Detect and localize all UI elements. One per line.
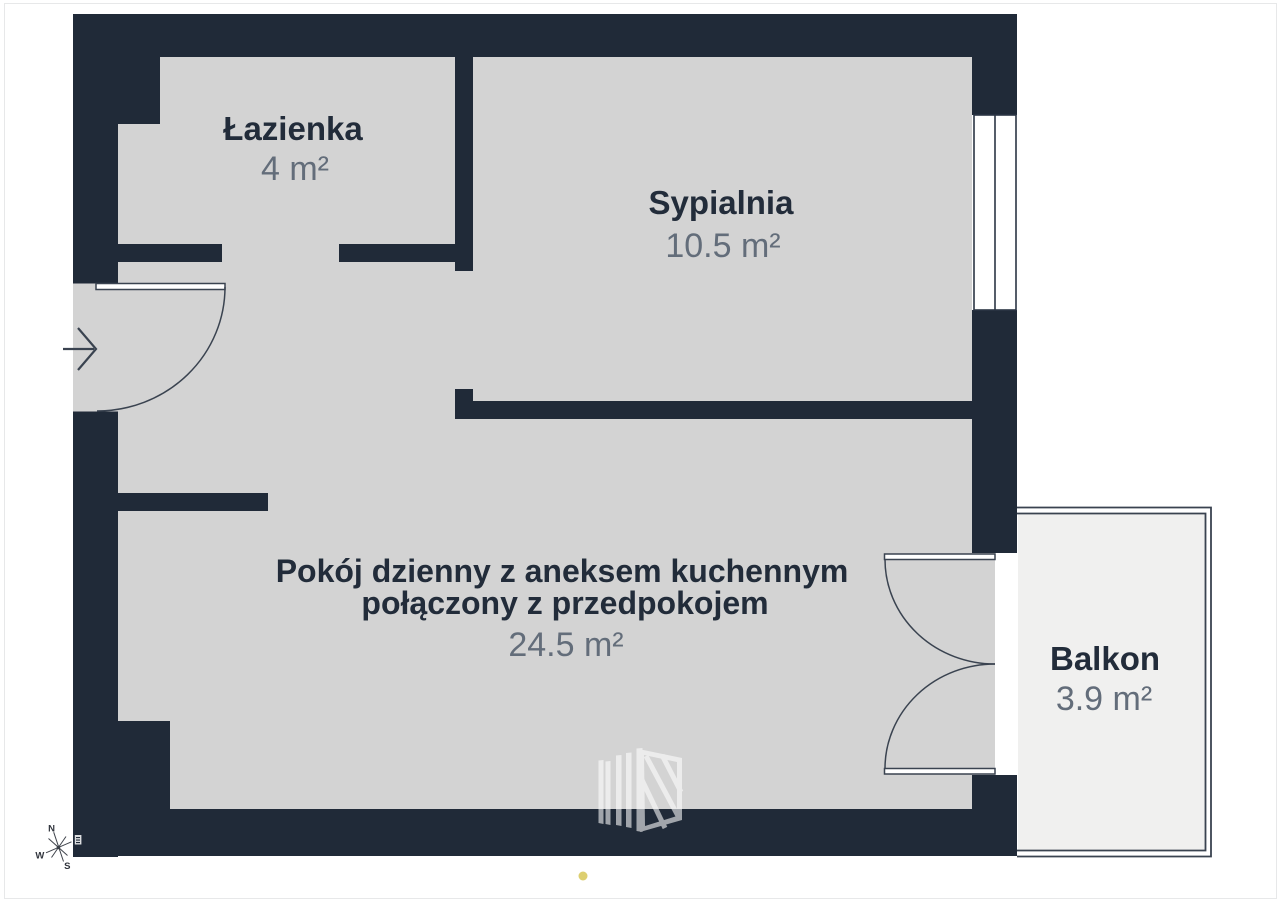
svg-text:3.9 m²: 3.9 m² [1056,680,1152,718]
svg-text:Balkon: Balkon [1050,640,1160,677]
svg-text:4 m²: 4 m² [261,150,329,188]
svg-text:połączony z przedpokojem: połączony z przedpokojem [361,585,768,621]
svg-text:10.5 m²: 10.5 m² [665,227,780,265]
svg-text:Sypialnia: Sypialnia [649,184,795,221]
svg-text:24.5 m²: 24.5 m² [508,626,623,664]
svg-text:Łazienka: Łazienka [223,110,363,147]
svg-text:W: W [35,851,44,862]
svg-text:S: S [64,861,70,872]
svg-text:Pokój dzienny z aneksem kuchen: Pokój dzienny z aneksem kuchennym [276,553,849,589]
svg-text:N: N [48,824,55,835]
